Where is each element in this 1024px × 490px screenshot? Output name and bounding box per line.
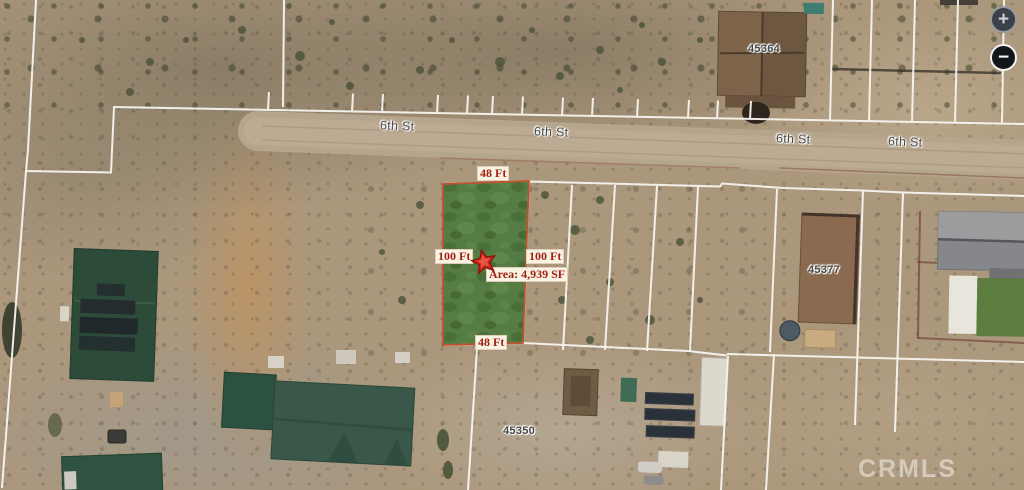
satellite-map[interactable]: 6th St 6th St 6th St 6th St 45364 45377 …	[0, 0, 1024, 490]
minus-icon: −	[998, 48, 1009, 67]
zoom-in-button[interactable]: +	[990, 6, 1017, 33]
plus-icon: +	[998, 10, 1009, 29]
terrain-background	[0, 0, 1024, 490]
zoom-out-button[interactable]: −	[990, 44, 1017, 71]
